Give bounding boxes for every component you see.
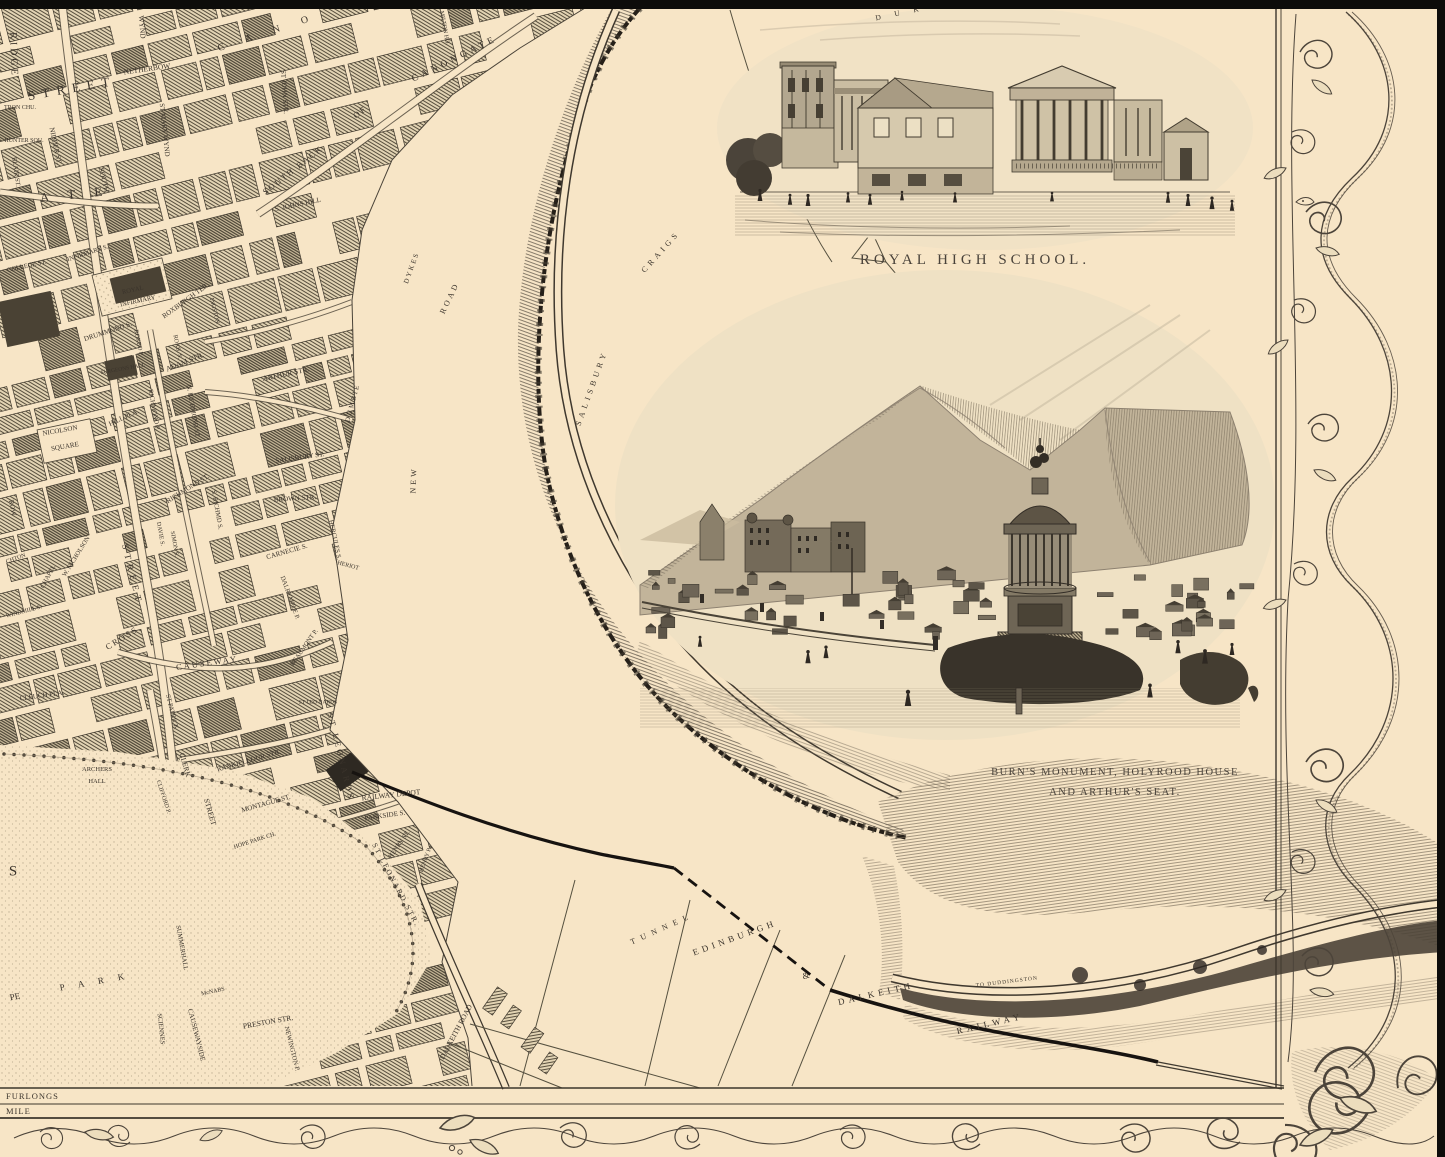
town-house [1198, 602, 1206, 608]
town-house [1220, 620, 1235, 629]
town-house [843, 594, 859, 606]
town-house [898, 612, 914, 620]
town-house [1106, 629, 1118, 635]
town-house [1240, 584, 1254, 589]
vignette-caption-burns-line2: AND ARTHUR'S SEAT. [950, 787, 1280, 798]
town-house [1182, 621, 1192, 631]
town-house [786, 595, 804, 604]
town-house [661, 617, 675, 628]
map-engraving [0, 0, 1445, 1157]
town-house [784, 616, 796, 626]
town-house [869, 614, 884, 619]
town-house [1097, 593, 1113, 597]
town-house [938, 570, 956, 580]
town-house [898, 582, 908, 595]
town-house [964, 590, 980, 601]
town-house [715, 589, 733, 593]
town-house [745, 611, 758, 620]
town-house [978, 615, 995, 620]
town-house [1150, 631, 1162, 639]
vignette-burns-monument [615, 270, 1275, 790]
town-house [889, 601, 901, 610]
town-house [980, 602, 992, 608]
scale-mile-label: MILE [6, 1106, 31, 1116]
town-house [683, 584, 700, 597]
town-house [1194, 578, 1209, 590]
town-house [1172, 585, 1183, 597]
town-house [969, 583, 984, 590]
town-house [905, 595, 913, 604]
town-house [767, 612, 776, 620]
town-house [1134, 575, 1145, 580]
vignette-royal-high-school [717, 6, 1253, 250]
town-house [748, 575, 758, 585]
scale-furlongs-label: FURLONGS [6, 1091, 59, 1101]
town-house [737, 589, 749, 596]
town-house [1166, 605, 1183, 611]
town-house [1197, 618, 1213, 626]
town-house [1123, 609, 1138, 618]
town-house [769, 585, 785, 590]
antique-map-page: RIDGESTREETNETHERBOWWYNDC A N OTRON CHU.… [0, 0, 1445, 1157]
town-house [883, 571, 898, 583]
vignette-caption-burns-line1: BURN'S MONUMENT, HOLYROOD HOUSE [950, 767, 1280, 778]
top-trim [0, 0, 1445, 9]
town-house [953, 580, 964, 587]
vignette-caption-royal-high-school: ROYAL HIGH SCHOOL. [740, 252, 1210, 269]
town-house [646, 627, 656, 633]
town-house [1227, 592, 1234, 599]
town-house [649, 570, 660, 575]
town-house [954, 601, 969, 614]
town-house [668, 578, 675, 583]
town-house [652, 585, 659, 589]
right-trim [1437, 0, 1445, 1157]
